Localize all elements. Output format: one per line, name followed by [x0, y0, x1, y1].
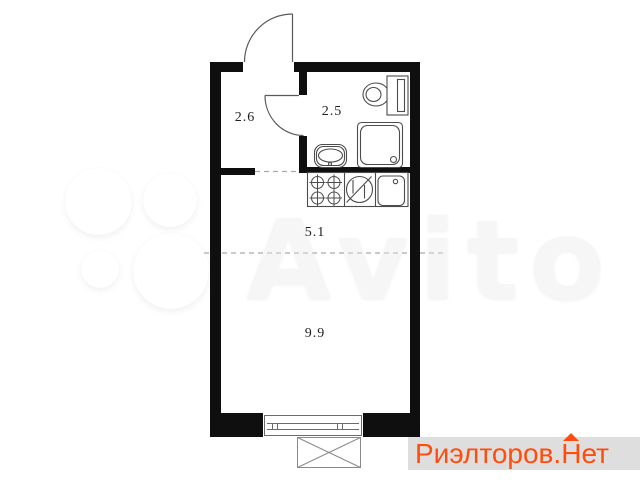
badge-text-suffix: ет: [581, 438, 608, 469]
badge-text-prefix: Риэлторов.: [415, 438, 561, 469]
room-label-bathroom: 2.5: [322, 104, 343, 120]
room-label-hallway: 2.6: [235, 110, 256, 126]
realtor-watermark-badge: Риэлторов.Нет: [408, 437, 640, 470]
room-label-kitchen: 5.1: [305, 225, 326, 241]
room-labels: 2.6 2.5 5.1 9.9: [0, 0, 640, 480]
badge-hat-letter: Н: [561, 437, 581, 470]
floorplan-image: { "watermark": { "brand_text": "Avito", …: [0, 0, 640, 480]
room-label-living-room: 9.9: [305, 326, 326, 342]
